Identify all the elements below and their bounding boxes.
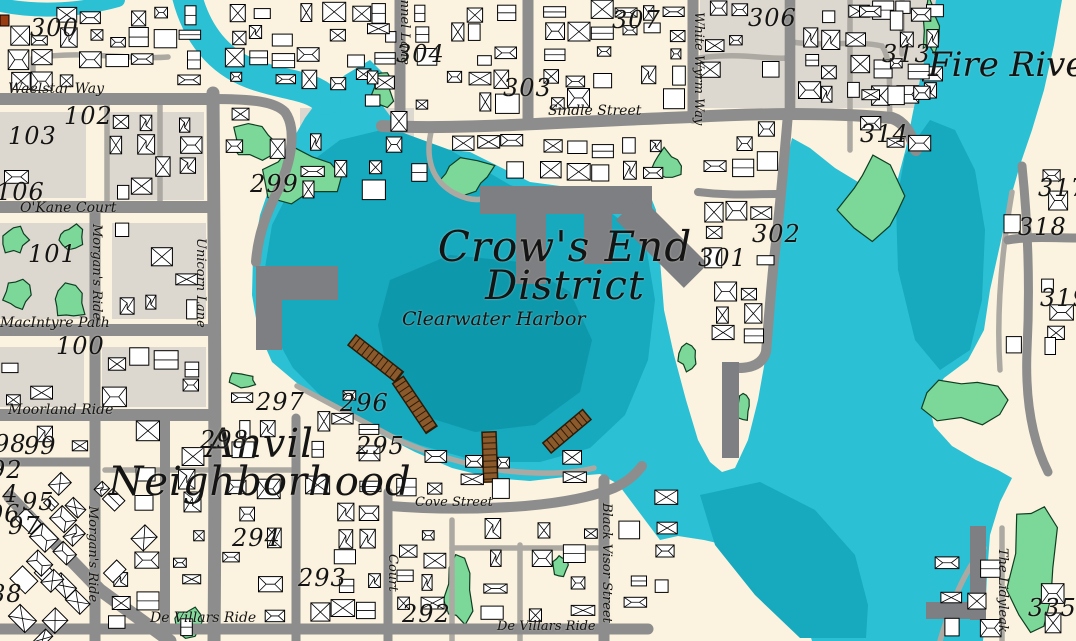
block-number-306: 306 <box>748 6 797 30</box>
block-number-319: 319 <box>1040 286 1076 310</box>
block-number-88: 88 <box>0 582 23 606</box>
block-number-92: 92 <box>0 458 23 482</box>
anvil-label-line2: Neighborhood <box>90 462 430 502</box>
block-number-313: 313 <box>882 42 931 66</box>
street-label-sindle-street: Sindle Street <box>548 104 641 118</box>
block-number-102: 102 <box>64 104 113 128</box>
block-number-292: 292 <box>402 602 451 626</box>
street-label-white-wyrm-way: White Wyrm Way <box>692 12 705 125</box>
block-number-100: 100 <box>56 334 105 358</box>
block-number-304: 304 <box>396 42 445 66</box>
street-label-unicorn-lane: Unicorn Lane <box>194 238 207 328</box>
street-label-de-villars-ride-east: De Villars Ride <box>497 620 596 633</box>
block-number-296: 296 <box>340 391 389 415</box>
block-number-300: 300 <box>30 16 79 40</box>
block-number-98: 98 <box>0 432 27 456</box>
block-number-299: 299 <box>250 172 299 196</box>
street-label-court: Court <box>386 554 399 592</box>
street-label-cove-street: Cove Street <box>415 496 493 509</box>
block-number-297: 297 <box>256 390 305 414</box>
street-label-morgans-ride-north: Morgan's Ride <box>90 224 103 320</box>
block-number-95: 95 <box>22 490 55 514</box>
block-number-101: 101 <box>28 242 77 266</box>
street-label-waelstar-way: Waelstar Way <box>8 82 104 96</box>
district-label-crows-end: Crow's End District <box>390 226 740 306</box>
fantasy-city-map[interactable]: Crow's End District Clearwater Harbor An… <box>0 0 1076 641</box>
river-label: Fire River <box>928 48 1076 82</box>
block-number-293: 293 <box>298 566 347 590</box>
block-number-99: 99 <box>24 434 57 458</box>
street-label-de-villars-ride-west: De Villars Ride <box>150 611 256 625</box>
street-label-the-lidyleak: The Lidyleak <box>996 548 1009 633</box>
harbor-label: Clearwater Harbor <box>402 310 586 329</box>
block-number-301: 301 <box>698 246 747 270</box>
block-number-318: 318 <box>1018 215 1067 239</box>
block-number-314: 314 <box>860 122 909 146</box>
block-number-335: 335 <box>1028 596 1076 620</box>
street-label-black-visor-street: Black Visor Street <box>600 503 613 623</box>
block-number-303: 303 <box>503 76 552 100</box>
block-number-317: 317 <box>1038 176 1076 200</box>
block-number-295: 295 <box>356 434 405 458</box>
block-number-302: 302 <box>752 222 801 246</box>
block-number-307: 307 <box>612 8 661 32</box>
block-number-97: 97 <box>8 514 41 538</box>
district-label-line2: District <box>390 266 740 306</box>
block-number-106: 106 <box>0 180 45 204</box>
street-label-morgans-ride-south: Morgan's Ride <box>86 506 99 602</box>
block-number-298: 298 <box>200 428 249 452</box>
map-marker <box>0 15 9 26</box>
block-number-294: 294 <box>232 526 281 550</box>
street-label-moorland-ride: Moorland Ride <box>8 403 113 417</box>
block-number-103: 103 <box>8 124 57 148</box>
